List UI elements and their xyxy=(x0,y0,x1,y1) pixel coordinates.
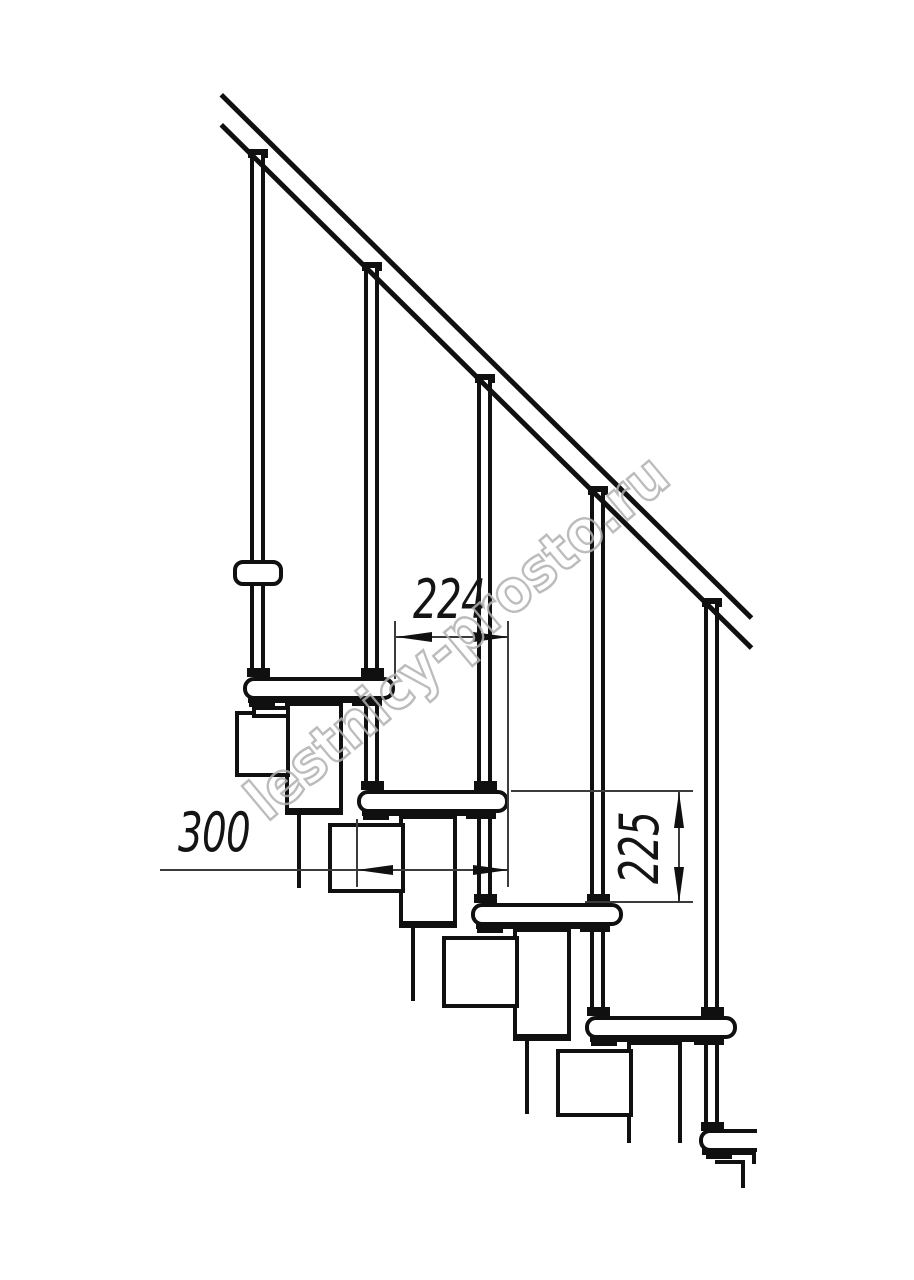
baluster-2-base-cap xyxy=(361,668,384,677)
baluster-2 xyxy=(364,268,379,670)
watermark: lestnicy-prosto.ru xyxy=(0,0,914,1280)
baluster-tube-below-step-3 xyxy=(590,926,605,1016)
step-2 xyxy=(357,790,509,813)
baluster-1-bracket xyxy=(233,560,283,586)
dim-300-line xyxy=(160,869,509,871)
upper-connector-notch xyxy=(252,706,290,718)
dim-224-arrow-right xyxy=(473,632,509,642)
baluster-5 xyxy=(704,604,719,1009)
connector-box-4 xyxy=(556,1049,633,1117)
tube-base-cap-3 xyxy=(587,1007,610,1016)
module-tongue-3 xyxy=(525,1039,529,1114)
dim-225-arrow-up xyxy=(674,792,684,828)
support-column-3 xyxy=(513,928,571,1041)
baluster-5-base-cap xyxy=(701,1007,724,1016)
step-1 xyxy=(243,677,395,700)
dim-224-arrow-left xyxy=(396,632,432,642)
tube-base-cap-1 xyxy=(361,781,384,790)
staircase-drawing: 224 300 225 lestnicy-prosto.ru xyxy=(0,0,914,1280)
baluster-tube-below-step-2 xyxy=(477,813,492,903)
dim-225-extension-top xyxy=(511,790,693,792)
baluster-3-base-cap xyxy=(474,781,497,790)
dim-300-label: 300 xyxy=(171,807,257,859)
tube-base-cap-2 xyxy=(474,894,497,903)
dim-224-extension-left xyxy=(394,621,396,679)
step-5-fragment-horizontal xyxy=(715,1160,744,1164)
module-tongue-1 xyxy=(297,813,301,888)
step-5-fragment-vertical xyxy=(741,1160,745,1188)
dim-300-arrow-right xyxy=(473,865,509,875)
baluster-tube-below-step-4 xyxy=(704,1039,719,1131)
step-4 xyxy=(585,1016,737,1039)
support-column-1 xyxy=(285,702,343,815)
step-5-truncated xyxy=(699,1129,757,1152)
baluster-4 xyxy=(590,492,605,896)
baluster-1-base-cap xyxy=(247,668,270,677)
dim-224-300-extension-right xyxy=(507,621,509,887)
dim-225-arrow-down xyxy=(674,867,684,903)
connector-box-2 xyxy=(328,823,405,893)
upper-connector-box xyxy=(235,711,290,777)
dim-224-label: 224 xyxy=(406,574,492,626)
support-column-4 xyxy=(627,1041,682,1143)
module-tongue-2 xyxy=(411,926,415,1001)
dim-300-extension-left xyxy=(356,819,358,887)
baluster-1 xyxy=(250,155,265,670)
dim-300-arrow-left xyxy=(357,865,393,875)
dim-225-label: 225 xyxy=(614,805,666,891)
support-column-2 xyxy=(399,815,457,928)
step-3 xyxy=(471,903,623,926)
baluster-tube-below-step-1 xyxy=(364,700,379,790)
connector-box-3 xyxy=(442,936,519,1008)
